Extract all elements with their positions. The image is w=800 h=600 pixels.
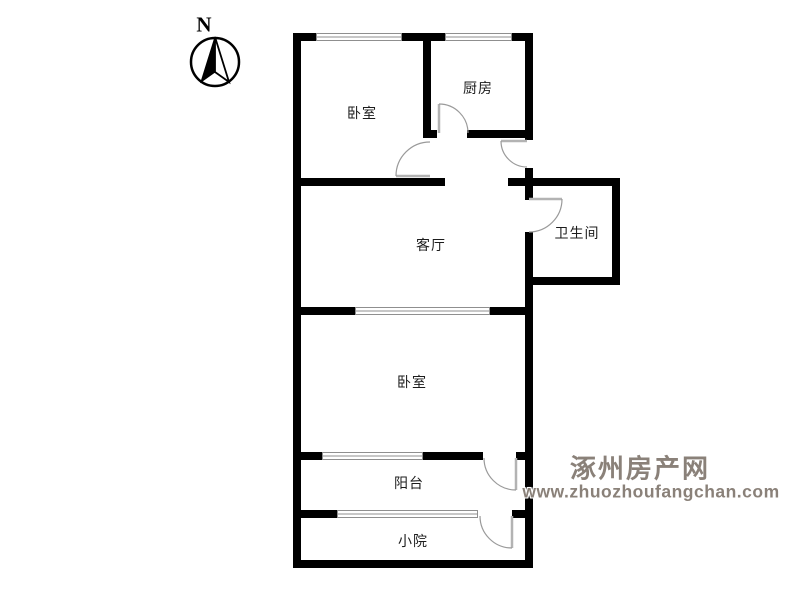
door-bedroom-top [396,142,430,176]
wall-livingroom-bottom-right [490,307,533,315]
wall-bedroom2-bottom-c [516,452,533,460]
wall-outer-right-a [525,33,533,140]
room-label-kitchen: 厨房 [463,78,493,98]
wall-outer-left [293,33,301,568]
room-label-yard: 小院 [398,531,428,551]
wall-balcony-bottom-b [512,510,533,518]
room-label-bedroom-bottom: 卧室 [397,372,427,392]
room-label-bathroom: 卫生间 [555,223,600,243]
wall-kitchen-bottom-stub [423,130,437,138]
door-balcony-yard [480,516,512,548]
door-swing-arc [501,141,527,167]
door-bedroom2-balcony [484,458,516,490]
room-label-balcony: 阳台 [394,473,424,493]
window-kitchen [446,34,512,41]
door-swing-arc [439,104,468,133]
wall-bedroom2-bottom-a [293,452,322,460]
wall-kitchen-bottom [467,130,533,138]
floorplan-drawing [0,0,800,600]
door-kitchen [439,104,468,133]
wall-bedroom-kitchen-divider [423,33,431,138]
wall-bathroom-bottom [533,277,620,285]
door-swing-arc [484,458,516,490]
wall-livingroom-top-left [293,178,445,186]
window-livingroom-bedroom2 [356,308,490,315]
wall-bathroom-right [612,178,620,285]
door-swing-arc [396,142,430,176]
compass-north-label: N [196,13,211,38]
watermark-url: www.zhuozhoufangchan.com [522,482,779,503]
compass-north-icon [191,37,239,86]
watermark-site-name: 涿州房产网 [570,449,710,486]
window-bedroom2 [323,453,423,460]
room-label-living-room: 客厅 [416,235,446,255]
wall-bedroom2-bottom-b [423,452,483,460]
wall-bathroom-top [508,178,620,186]
wall-livingroom-bottom-left [293,307,355,315]
door-entry [501,141,527,167]
door-swing-arc [480,516,512,548]
floor-plan-page: N 卧室 厨房 客厅 卫生间 卧室 阳台 小院 涿州房产网 www.zhuozh… [0,0,800,600]
wall-outer-bottom [293,560,533,568]
windows [317,34,512,518]
window-balcony [338,511,478,518]
wall-balcony-bottom-a [293,510,337,518]
room-label-bedroom-top: 卧室 [347,103,377,123]
window-bedroom-top [317,34,402,41]
wall-top-a [293,33,316,41]
